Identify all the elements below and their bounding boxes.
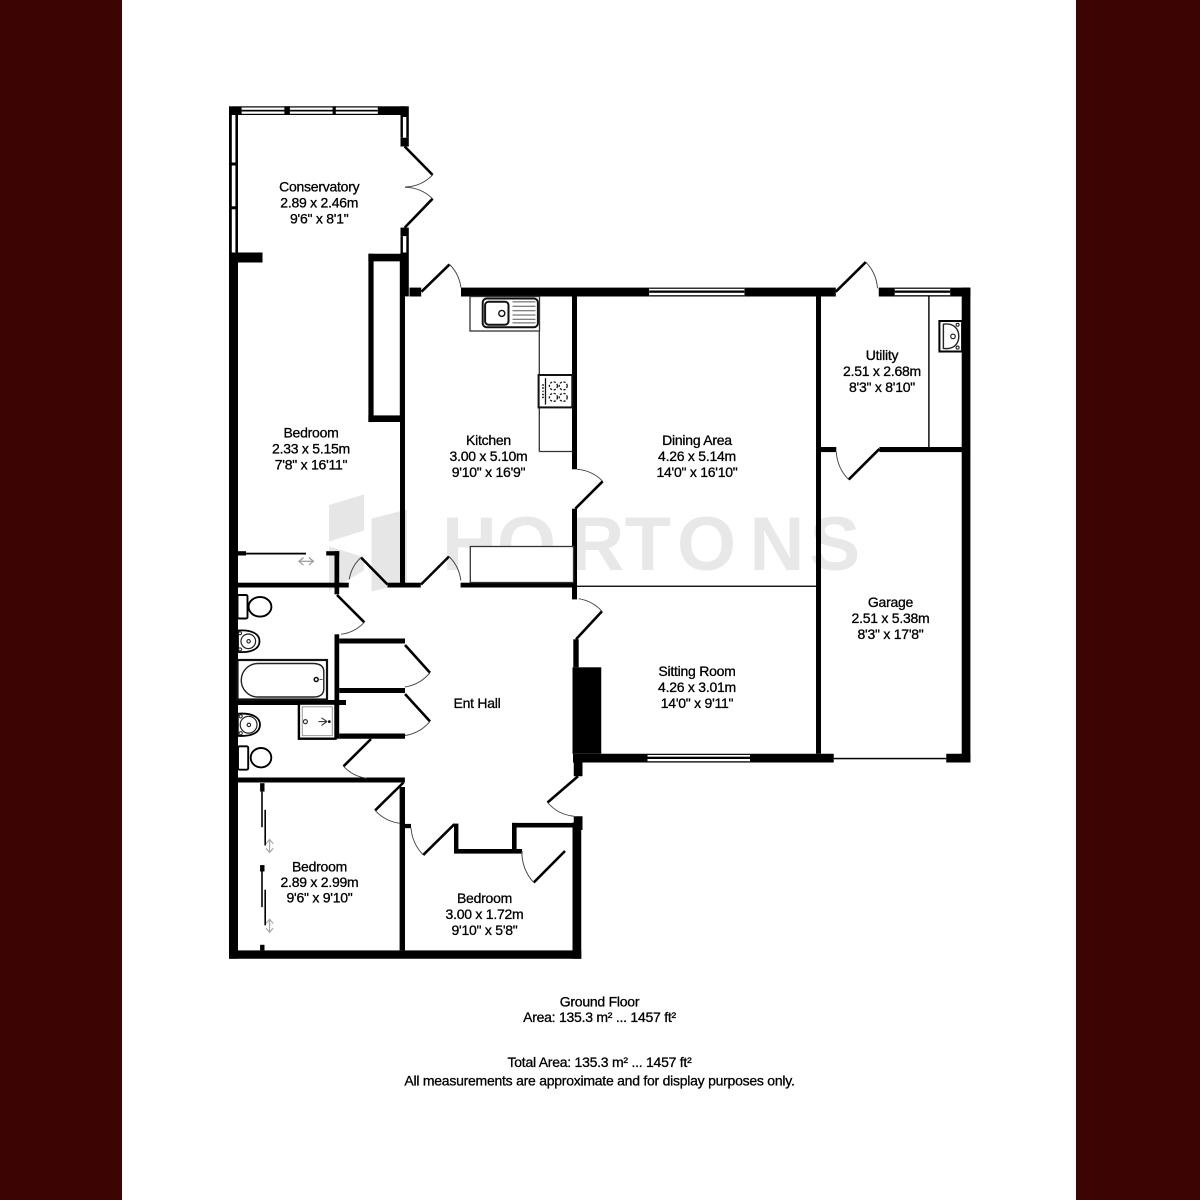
svg-text:9'6" x 8'1": 9'6" x 8'1" xyxy=(290,211,349,227)
svg-text:8'3" x 8'10": 8'3" x 8'10" xyxy=(849,379,915,395)
svg-text:Conservatory: Conservatory xyxy=(279,179,360,195)
svg-text:9'10" x 5'8": 9'10" x 5'8" xyxy=(452,922,518,938)
svg-text:2.89 x 2.46m: 2.89 x 2.46m xyxy=(280,195,358,211)
svg-text:Dining Area: Dining Area xyxy=(662,432,732,448)
svg-text:T: T xyxy=(625,502,671,587)
svg-text:Sitting Room: Sitting Room xyxy=(658,663,735,679)
svg-text:7'8" x 16'11": 7'8" x 16'11" xyxy=(275,457,348,473)
svg-text:14'0" x 16'10": 14'0" x 16'10" xyxy=(656,464,737,480)
svg-text:4.26 x 3.01m: 4.26 x 3.01m xyxy=(658,679,736,695)
svg-text:2.51 x 5.38m: 2.51 x 5.38m xyxy=(852,610,930,626)
svg-text:2.33 x 5.15m: 2.33 x 5.15m xyxy=(272,441,350,457)
svg-text:2.89 x 2.99m: 2.89 x 2.99m xyxy=(281,874,359,890)
svg-text:Bedroom: Bedroom xyxy=(283,425,338,441)
svg-text:9'6" x 9'10": 9'6" x 9'10" xyxy=(287,890,353,906)
svg-text:R: R xyxy=(570,502,625,587)
svg-text:Utility: Utility xyxy=(866,347,899,363)
svg-text:2.51 x 2.68m: 2.51 x 2.68m xyxy=(843,363,921,379)
svg-text:Total Area: 135.3 m² ... 1457: Total Area: 135.3 m² ... 1457 ft² xyxy=(508,1054,693,1070)
svg-text:3.00 x 1.72m: 3.00 x 1.72m xyxy=(446,906,524,922)
svg-text:Bedroom: Bedroom xyxy=(292,859,347,875)
svg-text:All measurements are approxima: All measurements are approximate and for… xyxy=(404,1073,794,1089)
svg-text:Garage: Garage xyxy=(868,594,914,610)
svg-text:4.26 x 5.14m: 4.26 x 5.14m xyxy=(658,448,736,464)
svg-text:N: N xyxy=(750,502,805,587)
svg-text:Ground Floor: Ground Floor xyxy=(560,993,640,1009)
svg-text:Bedroom: Bedroom xyxy=(457,890,512,906)
svg-text:Area: 135.3 m² ... 1457 ft²: Area: 135.3 m² ... 1457 ft² xyxy=(523,1009,676,1025)
svg-text:O: O xyxy=(677,502,736,587)
svg-text:Kitchen: Kitchen xyxy=(466,432,511,448)
svg-text:3.00 x 5.10m: 3.00 x 5.10m xyxy=(450,448,528,464)
svg-text:9'10" x 16'9": 9'10" x 16'9" xyxy=(452,464,526,480)
svg-text:14'0" x 9'11": 14'0" x 9'11" xyxy=(661,695,734,711)
svg-text:Ent Hall: Ent Hall xyxy=(453,695,500,711)
svg-text:8'3" x 17'8": 8'3" x 17'8" xyxy=(858,626,924,642)
